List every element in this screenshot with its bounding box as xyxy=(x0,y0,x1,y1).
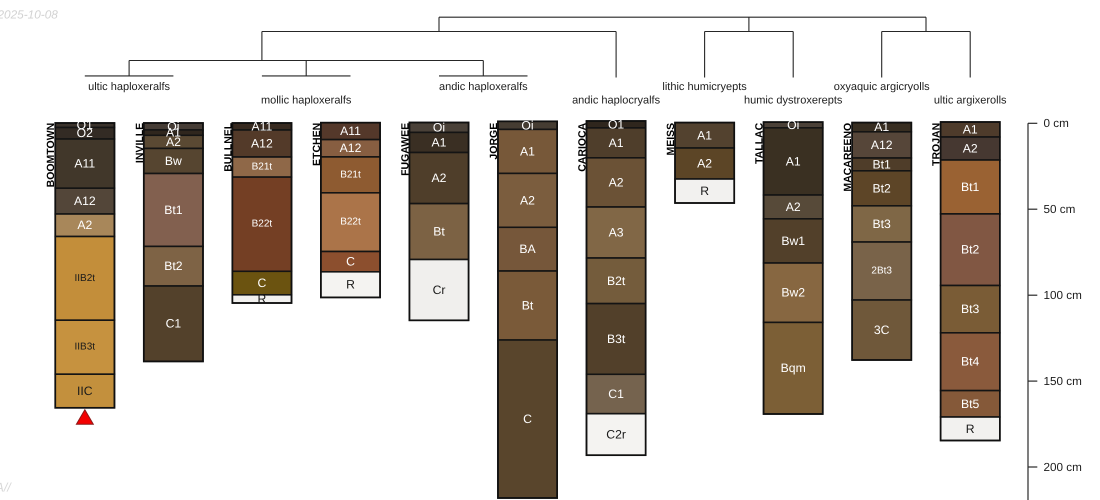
svg-text:Bt: Bt xyxy=(433,225,445,239)
svg-text:A2: A2 xyxy=(520,193,535,207)
svg-text:0 cm: 0 cm xyxy=(1044,117,1069,130)
svg-text:Cr: Cr xyxy=(433,283,446,297)
svg-text:R: R xyxy=(346,278,355,292)
svg-text:B21t: B21t xyxy=(252,162,273,173)
svg-text:humic dystroxerepts: humic dystroxerepts xyxy=(744,95,843,107)
svg-text:B22t: B22t xyxy=(340,217,361,228)
svg-text:A1: A1 xyxy=(963,123,978,137)
svg-text:mollic haploxeralfs: mollic haploxeralfs xyxy=(261,95,352,107)
svg-text:C1: C1 xyxy=(608,387,624,401)
svg-text:Bt1: Bt1 xyxy=(164,203,183,217)
svg-text:oxyaquic argicryolls: oxyaquic argicryolls xyxy=(834,81,930,93)
svg-text:lithic humicryepts: lithic humicryepts xyxy=(662,81,747,93)
svg-text:C1: C1 xyxy=(166,317,182,331)
svg-text:andic haplocryalfs: andic haplocryalfs xyxy=(572,95,661,107)
svg-text:A12: A12 xyxy=(871,138,893,152)
svg-text:C: C xyxy=(346,255,355,269)
svg-text:A2: A2 xyxy=(697,157,712,171)
svg-text:Bt2: Bt2 xyxy=(164,259,183,273)
svg-text:R: R xyxy=(700,184,709,198)
svg-text:R: R xyxy=(257,292,266,306)
svg-text:A11: A11 xyxy=(340,124,361,138)
svg-text:C2r: C2r xyxy=(606,427,626,441)
svg-text:R: R xyxy=(966,422,975,436)
svg-text:B3t: B3t xyxy=(607,332,626,346)
svg-text:BA: BA xyxy=(519,242,536,256)
svg-text:2Bt3: 2Bt3 xyxy=(871,266,892,277)
svg-text:O2: O2 xyxy=(77,126,93,140)
svg-text:3C: 3C xyxy=(874,323,890,337)
svg-text:andic haploxeralfs: andic haploxeralfs xyxy=(439,81,528,93)
svg-text:A1: A1 xyxy=(874,120,889,134)
svg-text:A12: A12 xyxy=(74,194,96,208)
svg-text:A1: A1 xyxy=(786,154,801,168)
svg-text:A1: A1 xyxy=(609,136,624,150)
svg-text:B2t: B2t xyxy=(607,274,626,288)
svg-text:Bt2: Bt2 xyxy=(873,181,892,195)
svg-text:A2: A2 xyxy=(432,171,447,185)
svg-text:C: C xyxy=(257,276,266,290)
svg-text:B21t: B21t xyxy=(340,169,361,180)
svg-text:Bt3: Bt3 xyxy=(961,302,980,316)
svg-text:A12: A12 xyxy=(251,137,273,151)
svg-text:A1: A1 xyxy=(697,128,712,142)
svg-text:Bt: Bt xyxy=(522,299,534,313)
svg-text:200 cm: 200 cm xyxy=(1044,461,1082,474)
svg-text:A//: A// xyxy=(0,481,12,495)
svg-text:2025-10-08: 2025-10-08 xyxy=(0,8,58,22)
svg-text:O1: O1 xyxy=(608,118,624,132)
svg-text:A2: A2 xyxy=(786,200,801,214)
svg-text:IIB2t: IIB2t xyxy=(75,273,96,284)
svg-text:Bw: Bw xyxy=(165,154,182,168)
svg-text:Bt2: Bt2 xyxy=(961,243,980,257)
svg-text:A3: A3 xyxy=(609,226,624,240)
svg-text:A12: A12 xyxy=(340,141,362,155)
svg-text:A2: A2 xyxy=(609,175,624,189)
svg-text:Bw2: Bw2 xyxy=(781,286,805,300)
svg-text:Bt3: Bt3 xyxy=(873,217,892,231)
svg-text:Bqm: Bqm xyxy=(781,361,806,375)
svg-text:Oi: Oi xyxy=(521,118,533,132)
svg-text:Oi: Oi xyxy=(787,118,799,132)
svg-text:A2: A2 xyxy=(963,142,978,156)
svg-text:Bw1: Bw1 xyxy=(781,234,805,248)
svg-text:A1: A1 xyxy=(520,144,535,158)
svg-text:50 cm: 50 cm xyxy=(1044,203,1076,216)
svg-text:150 cm: 150 cm xyxy=(1044,375,1082,388)
svg-text:100 cm: 100 cm xyxy=(1044,289,1082,302)
svg-text:Bt1: Bt1 xyxy=(873,157,892,171)
svg-text:A1: A1 xyxy=(432,135,447,149)
svg-text:ultic argixerolls: ultic argixerolls xyxy=(934,95,1007,107)
svg-text:A11: A11 xyxy=(74,157,95,171)
svg-text:Bt4: Bt4 xyxy=(961,355,980,369)
svg-text:B22t: B22t xyxy=(252,219,273,230)
svg-text:C: C xyxy=(523,412,532,426)
svg-text:Oi: Oi xyxy=(433,121,445,135)
svg-text:A11: A11 xyxy=(252,120,273,134)
svg-text:A2: A2 xyxy=(77,218,92,232)
svg-text:ultic haploxeralfs: ultic haploxeralfs xyxy=(88,81,170,93)
svg-text:IIB3t: IIB3t xyxy=(75,342,96,353)
svg-text:Bt1: Bt1 xyxy=(961,180,980,194)
svg-text:A2: A2 xyxy=(166,135,181,149)
svg-text:Bt5: Bt5 xyxy=(961,397,980,411)
svg-text:IIC: IIC xyxy=(77,384,93,398)
